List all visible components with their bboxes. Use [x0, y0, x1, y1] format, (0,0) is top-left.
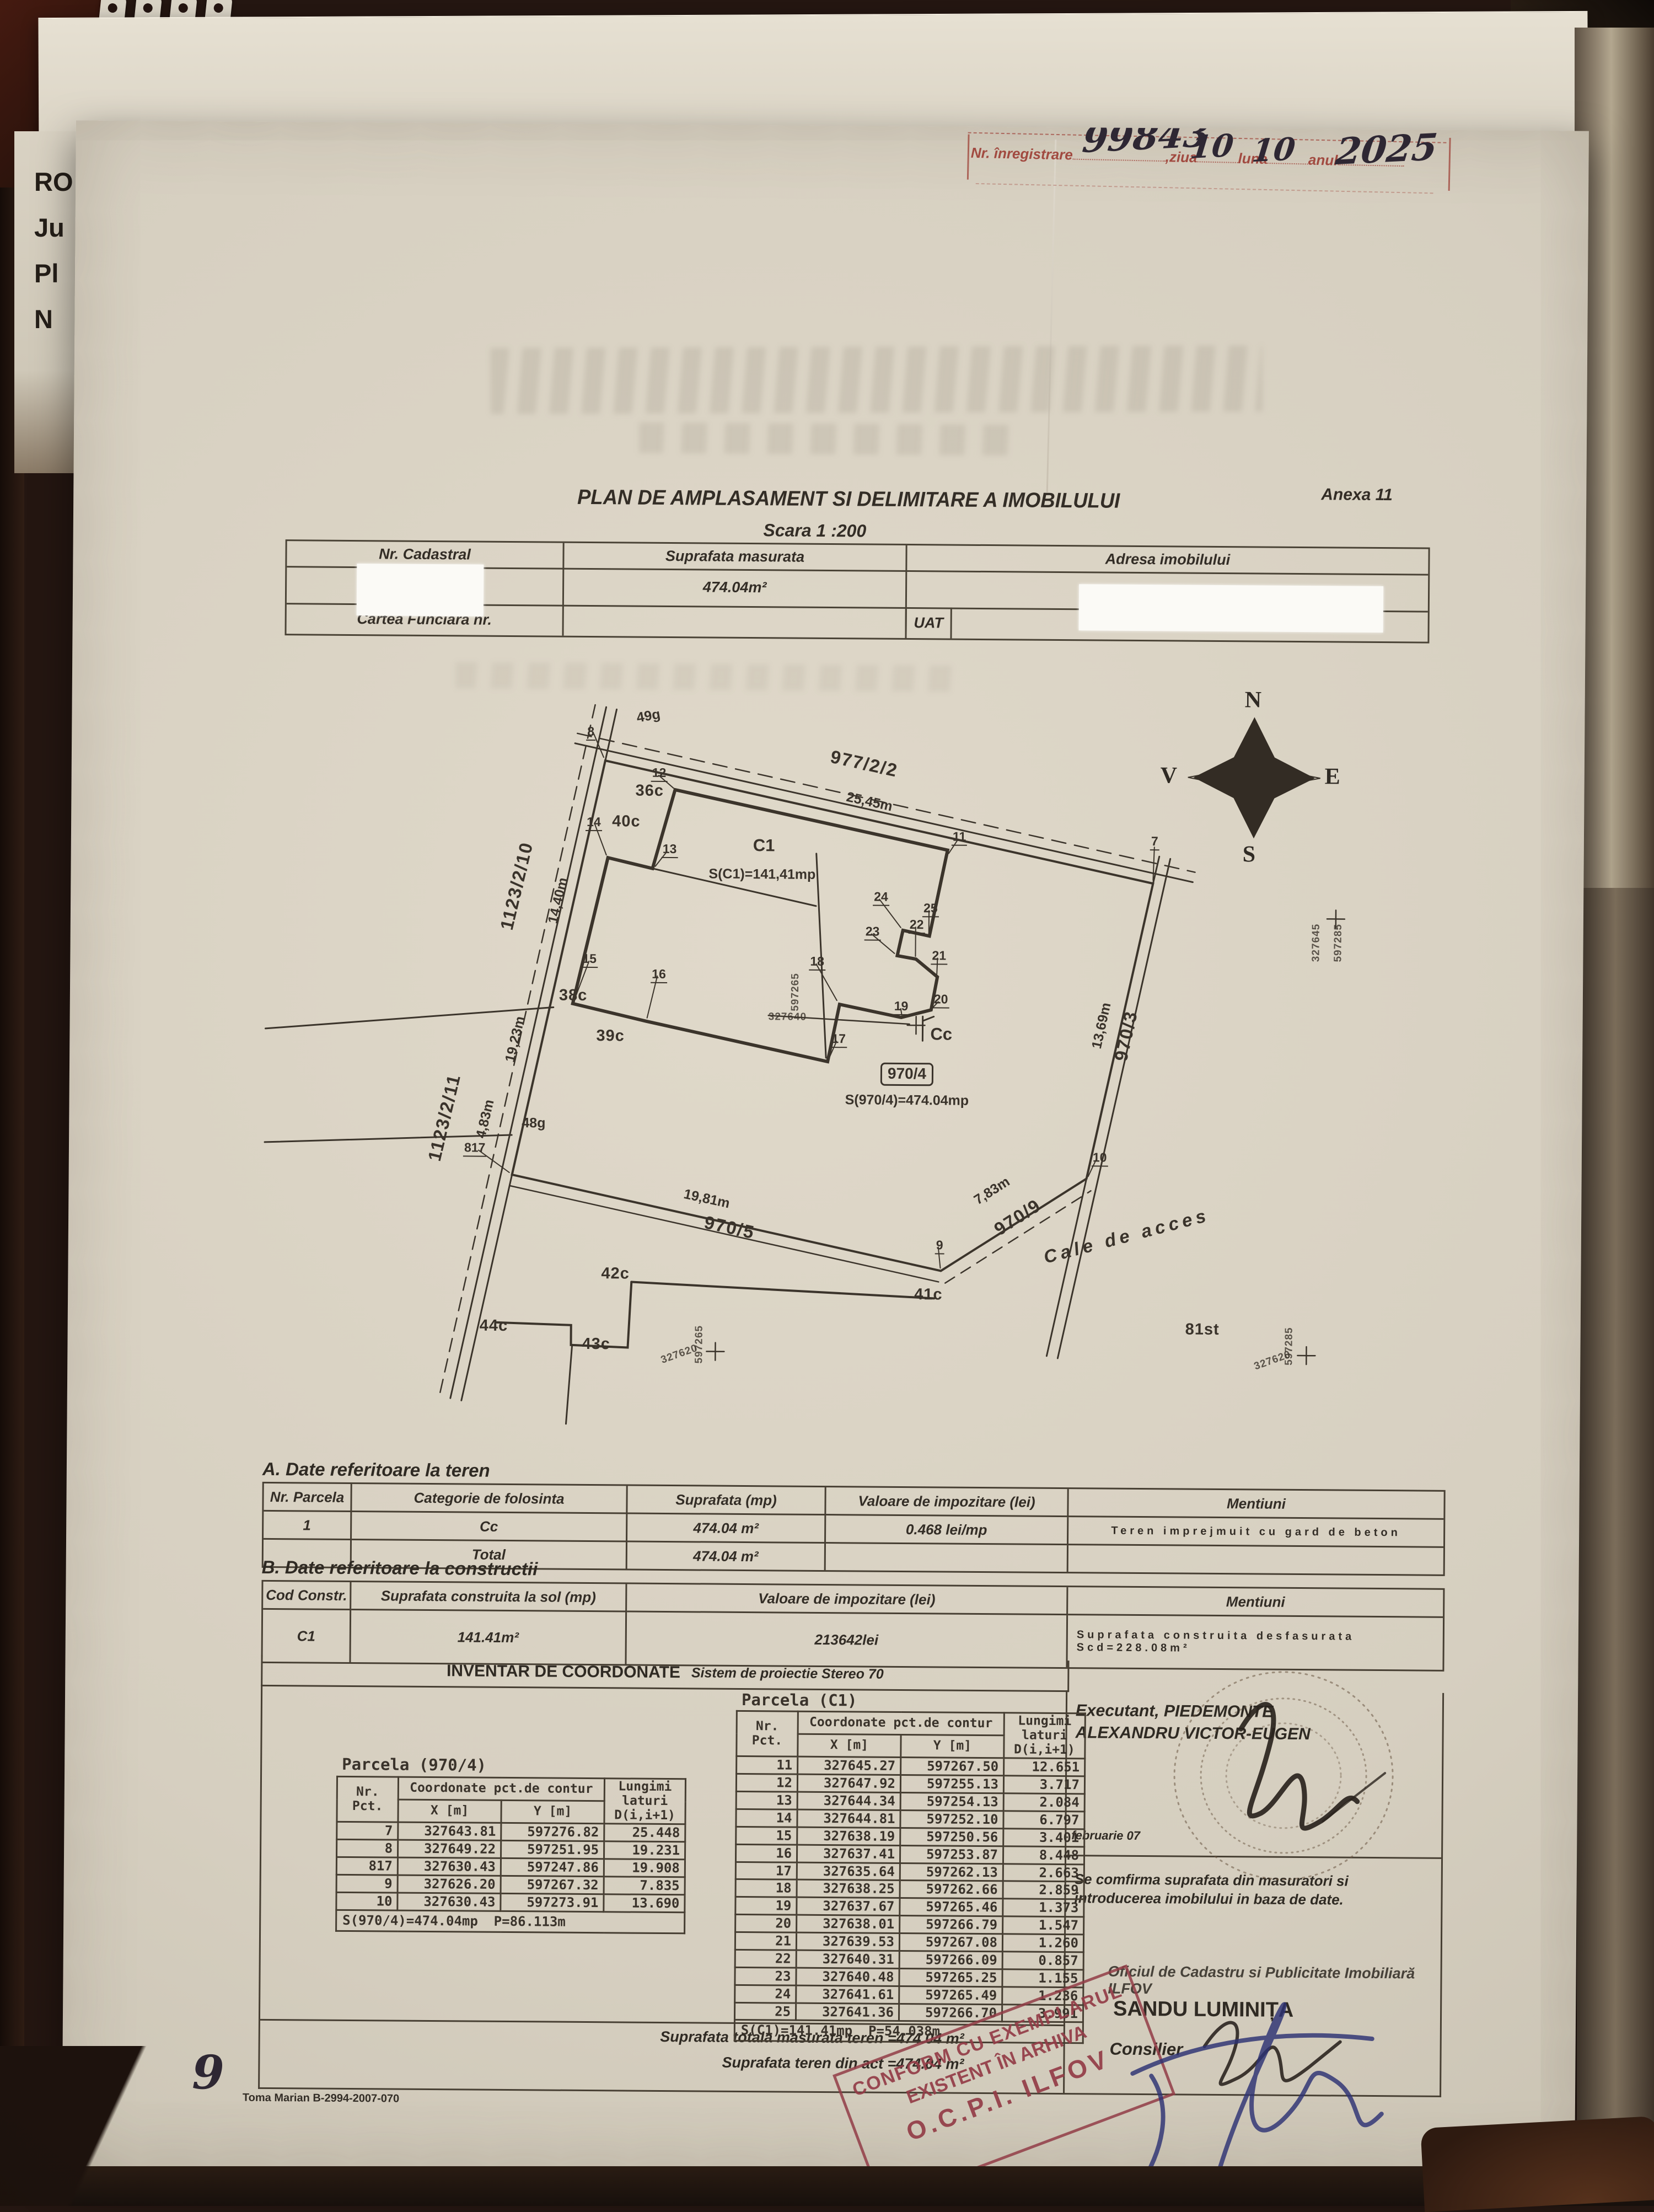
underlying-letter: RO — [34, 167, 73, 197]
photo-bottom-edge — [0, 2166, 1654, 2206]
cadastral-plan-sheet: Nr. înregistrare ,ziua luna anul 99843 1… — [62, 120, 1589, 2177]
underlying-letter: Ju — [34, 212, 73, 243]
underlying-sheet-letters: ROJuPlN — [34, 167, 73, 334]
round-stamp-icon — [1174, 1671, 1394, 1880]
photo-bottom-right-object — [1420, 2116, 1654, 2212]
underlying-letter: Pl — [34, 258, 73, 288]
executant-signature-icon — [1240, 1704, 1358, 1828]
blue-pen-signature-icon — [1132, 2004, 1382, 2177]
signatures-layer — [62, 120, 1589, 2177]
underlying-left-sheet: ROJuPlN — [14, 131, 80, 473]
underlying-letter: N — [34, 304, 73, 334]
photo-bottom-left-shadow — [0, 2046, 187, 2206]
underlying-right-sheet-edge — [1577, 888, 1654, 2206]
